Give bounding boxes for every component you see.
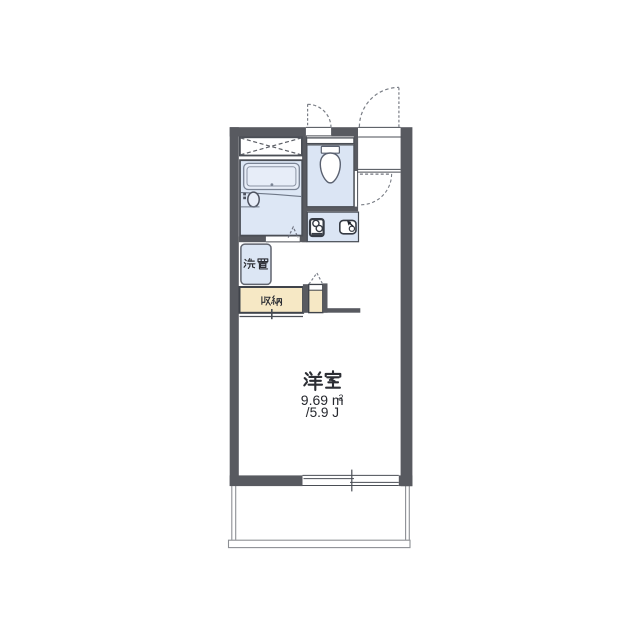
svg-text:2: 2 (339, 393, 344, 403)
svg-text:/5.9 J: /5.9 J (306, 405, 339, 420)
